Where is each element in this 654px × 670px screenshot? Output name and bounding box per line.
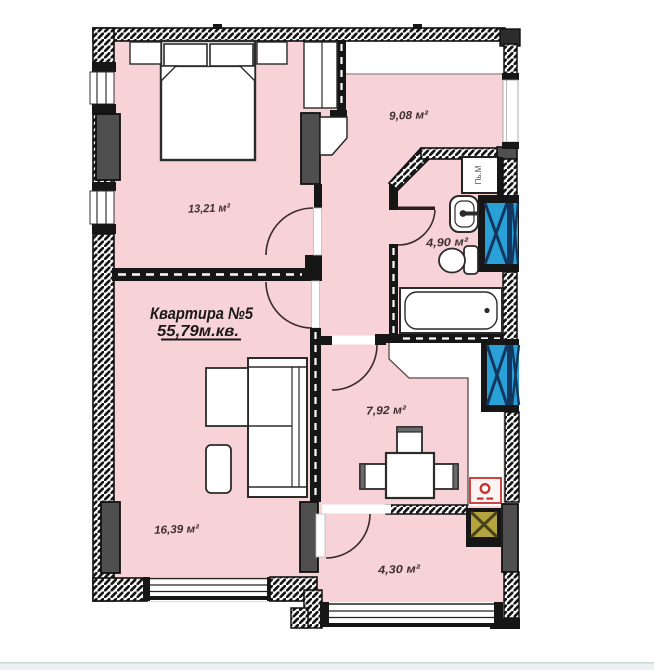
svg-text:Пь.М: Пь.М [474, 165, 483, 184]
svg-text:13,21 м²: 13,21 м² [188, 202, 231, 215]
svg-text:16,39 м²: 16,39 м² [154, 523, 201, 537]
svg-text:9,08 м²: 9,08 м² [389, 109, 430, 122]
svg-text:7,92 м²: 7,92 м² [366, 404, 408, 417]
svg-text:4,30 м²: 4,30 м² [377, 563, 422, 577]
svg-text:55,79м.кв.: 55,79м.кв. [157, 323, 239, 340]
svg-text:4,90 м²: 4,90 м² [425, 236, 470, 250]
svg-text:Квартира №5: Квартира №5 [150, 304, 253, 323]
